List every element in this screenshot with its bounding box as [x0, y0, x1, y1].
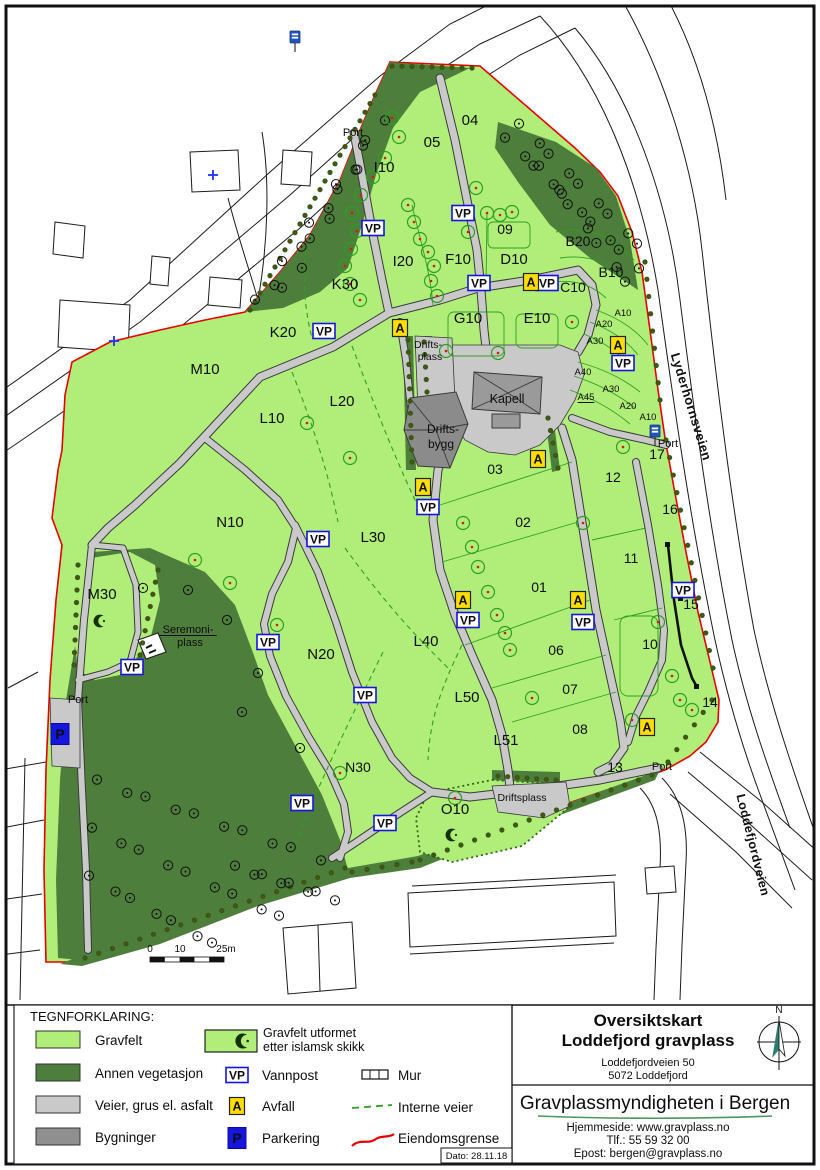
field-label-a30: A30: [587, 336, 604, 347]
legend-label-interne: Interne veier: [398, 1100, 474, 1115]
vannpost-marker: VP: [536, 276, 558, 291]
vannpost-marker: VP: [313, 324, 335, 339]
vannpost-marker: VP: [226, 1068, 248, 1083]
map-title-line2: Loddefjord gravplass: [562, 1031, 735, 1050]
legend-label-avfall: Avfall: [262, 1099, 295, 1114]
area-label-driftsplass: Driftsplass: [497, 792, 546, 804]
field-label-03: 03: [487, 461, 503, 477]
vannpost-marker: VP: [307, 532, 329, 547]
svg-text:VP: VP: [471, 277, 487, 291]
field-label-14: 14: [702, 694, 718, 710]
svg-text:VP: VP: [460, 614, 476, 628]
area-label-port: Port: [652, 761, 672, 773]
svg-text:P: P: [55, 726, 64, 742]
area-label-port: Port: [68, 694, 88, 706]
svg-text:A: A: [533, 453, 542, 467]
swatch-vegetation: [36, 1064, 80, 1081]
vannpost-marker: VP: [468, 276, 490, 291]
field-label-l20: L20: [329, 393, 354, 410]
svg-text:VP: VP: [575, 616, 591, 630]
field-label-13: 13: [607, 759, 623, 775]
scale-25m: 25m: [216, 944, 235, 955]
legend-label-vannpost: Vannpost: [262, 1068, 318, 1083]
svg-text:VP: VP: [294, 797, 310, 811]
field-label-a30: A30: [603, 384, 620, 395]
field-label-c10: C10: [560, 279, 586, 295]
field-label-08: 08: [572, 721, 588, 737]
svg-text:P: P: [232, 1130, 241, 1146]
svg-text:A: A: [613, 339, 622, 353]
area-label-plass: plass: [418, 351, 443, 363]
contact-email: Epost: bergen@gravplass.no: [574, 1148, 722, 1160]
vannpost-marker: VP: [457, 613, 479, 628]
avfall-marker: A: [640, 719, 655, 736]
svg-text:VP: VP: [357, 689, 373, 703]
vannpost-marker: VP: [374, 816, 396, 831]
field-label-d10: D10: [500, 251, 528, 268]
parkering-marker: P: [228, 1128, 246, 1149]
field-label-i10: I10: [374, 159, 395, 176]
avfall-marker: A: [524, 274, 539, 291]
field-label-a10: A10: [640, 412, 657, 423]
legend-label-veier: Veier, grus el. asfalt: [95, 1098, 213, 1113]
svg-text:VP: VP: [365, 222, 381, 236]
svg-text:VP: VP: [377, 817, 393, 831]
field-label-05: 05: [424, 134, 441, 151]
parkering-icon: P: [228, 1128, 246, 1149]
authority-underline: [538, 1116, 772, 1118]
field-label-n10: N10: [216, 514, 244, 531]
swatch-roads: [36, 1096, 80, 1113]
field-label-b20: B20: [566, 233, 591, 249]
bus-stop-icon: [290, 31, 300, 52]
avfall-marker: A: [531, 451, 546, 468]
field-label-07: 07: [562, 681, 578, 697]
field-label-g10: G10: [454, 310, 482, 327]
compass-rose: N: [757, 1005, 801, 1070]
address-line1: Loddefjordveien 50: [601, 1057, 695, 1069]
area-label-port: Port: [658, 438, 678, 450]
field-label-f10: F10: [445, 251, 471, 268]
legend-heading: TEGNFORKLARING:: [30, 1009, 154, 1024]
field-label-16: 16: [662, 501, 678, 517]
field-label-a20: A20: [620, 401, 637, 412]
avfall-marker: A: [416, 479, 431, 496]
legend-label-bygninger: Bygninger: [95, 1130, 156, 1145]
field-label-04: 04: [462, 112, 479, 129]
compass-n-label: N: [775, 1005, 782, 1016]
vannpost-marker: VP: [417, 500, 439, 515]
street-label-loddefjordveien: Loddefjordveien: [733, 793, 772, 898]
area-label-drifts: Drifts-: [427, 422, 459, 436]
area-label-seremoni: Seremoni-: [163, 624, 214, 636]
legend-label-gravfelt: Gravfelt: [95, 1033, 143, 1048]
date-label: Dato: 28.11.18: [446, 1151, 508, 1162]
svg-text:VP: VP: [316, 325, 332, 339]
area-label-port: Port: [343, 127, 363, 139]
authority-name: Gravplassmyndigheten i Bergen: [520, 1093, 790, 1114]
vannpost-marker: VP: [452, 206, 474, 221]
map-sheet: VPVPVPVPVPVPVPVPVPVPVPVPVPVPVPVPAAAAAAAA…: [0, 0, 820, 1170]
svg-text:VP: VP: [455, 207, 471, 221]
field-label-02: 02: [515, 514, 531, 530]
field-label-09: 09: [497, 221, 513, 237]
field-label-l30: L30: [360, 529, 385, 546]
avfall-icon: A: [230, 1098, 245, 1115]
field-label-b10: B10: [599, 264, 624, 280]
cemetery-overview-map: VPVPVPVPVPVPVPVPVPVPVPVPVPVPVPVPAAAAAAAA…: [0, 0, 820, 1170]
field-label-l40: L40: [413, 633, 438, 650]
vannpost-icon: VP: [226, 1068, 248, 1083]
field-label-a20: A20: [596, 319, 613, 330]
svg-text:VP: VP: [310, 533, 326, 547]
avfall-marker: A: [611, 337, 626, 354]
field-label-n30: N30: [345, 759, 371, 775]
svg-text:A: A: [418, 481, 427, 495]
field-label-n20: N20: [307, 646, 335, 663]
mur-icon: [362, 1070, 388, 1079]
field-label-k20: K20: [270, 324, 297, 341]
field-label-e10: E10: [524, 310, 551, 327]
swatch-islamic-gravfelt: [205, 1030, 257, 1052]
field-label-11: 11: [624, 550, 639, 566]
scale-0: 0: [147, 944, 153, 955]
scale-bar: 0 10 25m: [147, 944, 236, 962]
contact-tel: Tlf.: 55 59 32 00: [606, 1135, 689, 1147]
legend-label-islamic-1: Gravfelt utformet: [263, 1026, 357, 1040]
svg-text:A: A: [526, 276, 535, 290]
vannpost-marker: VP: [572, 615, 594, 630]
field-label-12: 12: [605, 469, 621, 485]
field-label-a40: A40: [575, 367, 592, 378]
parkering-marker: P: [51, 724, 69, 745]
field-label-m10: M10: [190, 361, 219, 378]
svg-text:VP: VP: [615, 357, 631, 371]
svg-text:A: A: [395, 322, 404, 336]
field-label-15: 15: [683, 596, 699, 612]
area-label-kapell: Kapell: [490, 392, 525, 406]
area-label-bygg: bygg: [428, 437, 454, 451]
svg-text:A: A: [573, 594, 582, 608]
legend-label-mur: Mur: [398, 1068, 422, 1083]
vannpost-marker: VP: [612, 356, 634, 371]
legend-label-vegetasjon: Annen vegetasjon: [95, 1066, 203, 1081]
scale-10: 10: [174, 944, 186, 955]
avfall-marker: A: [230, 1098, 245, 1115]
vannpost-marker: VP: [257, 635, 279, 650]
swatch-gravfelt: [36, 1031, 80, 1048]
field-label-a45: A45: [578, 392, 595, 403]
field-label-l10: L10: [259, 410, 284, 427]
area-label-plass: plass: [177, 637, 203, 649]
field-label-l51: L51: [493, 732, 518, 749]
legend-label-parkering: Parkering: [262, 1131, 320, 1146]
avfall-marker: A: [456, 592, 471, 609]
field-label-l50: L50: [454, 689, 479, 706]
vannpost-marker: VP: [291, 796, 313, 811]
swatch-buildings: [36, 1128, 80, 1145]
area-label-drifts: Drifts-: [414, 339, 442, 351]
svg-text:A: A: [458, 594, 467, 608]
field-label-m30: M30: [87, 586, 116, 603]
svg-text:VP: VP: [260, 636, 276, 650]
field-label-a10: A10: [615, 308, 632, 319]
legend-label-islamic-2: etter islamsk skikk: [263, 1040, 365, 1054]
field-label-10: 10: [642, 636, 658, 652]
vannpost-marker: VP: [362, 221, 384, 236]
svg-text:A: A: [642, 721, 651, 735]
map-title-line1: Oversiktskart: [594, 1011, 703, 1030]
field-label-06: 06: [548, 642, 564, 658]
vannpost-marker: VP: [121, 660, 143, 675]
field-label-o10: O10: [441, 801, 469, 818]
contact-web: Hjemmeside: www.gravplass.no: [567, 1122, 730, 1134]
field-label-01: 01: [531, 579, 547, 595]
svg-text:VP: VP: [229, 1069, 245, 1083]
svg-text:VP: VP: [420, 501, 436, 515]
address-line2: 5072 Loddefjord: [608, 1070, 688, 1082]
svg-text:A: A: [232, 1100, 241, 1114]
map-area: VPVPVPVPVPVPVPVPVPVPVPVPVPVPVPVPAAAAAAAA…: [0, 0, 818, 1000]
legend-label-eiendom: Eiendomsgrense: [398, 1131, 499, 1146]
avfall-marker: A: [393, 320, 408, 337]
svg-text:VP: VP: [539, 277, 555, 291]
avfall-marker: A: [571, 592, 586, 609]
field-label-i20: I20: [393, 253, 414, 270]
svg-text:VP: VP: [124, 661, 140, 675]
field-label-k30: K30: [332, 276, 359, 293]
vannpost-marker: VP: [354, 688, 376, 703]
